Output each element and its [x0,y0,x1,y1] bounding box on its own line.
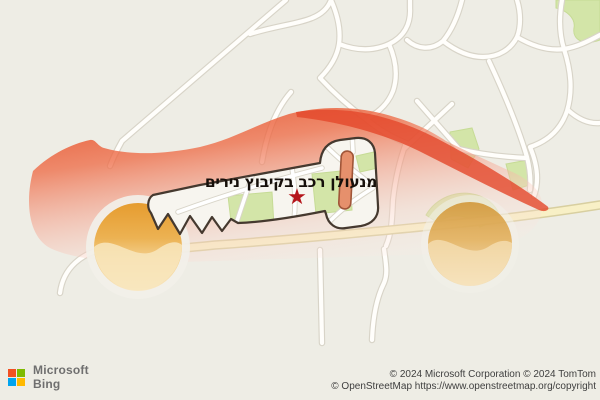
ms-square-blue [8,378,16,386]
map-viewport[interactable]: מנעולן רכב בקיבוץ נירים ★ Microsoft Bing… [0,0,600,400]
star-marker-icon[interactable]: ★ [285,186,309,210]
copyright-line1: © 2024 Microsoft Corporation © 2024 TomT… [331,369,596,381]
copyright-notice: © 2024 Microsoft Corporation © 2024 TomT… [331,369,596,392]
microsoft-logo-icon [8,369,25,386]
ms-square-green [17,369,25,377]
ms-square-yellow [17,378,25,386]
ms-square-red [8,369,16,377]
copyright-line2[interactable]: © OpenStreetMap https://www.openstreetma… [331,381,596,393]
bing-wordmark-product: Bing [33,378,89,392]
bing-wordmark: Microsoft Bing [33,364,89,391]
bing-wordmark-company: Microsoft [33,364,89,378]
bing-attribution[interactable]: Microsoft Bing [8,364,89,391]
